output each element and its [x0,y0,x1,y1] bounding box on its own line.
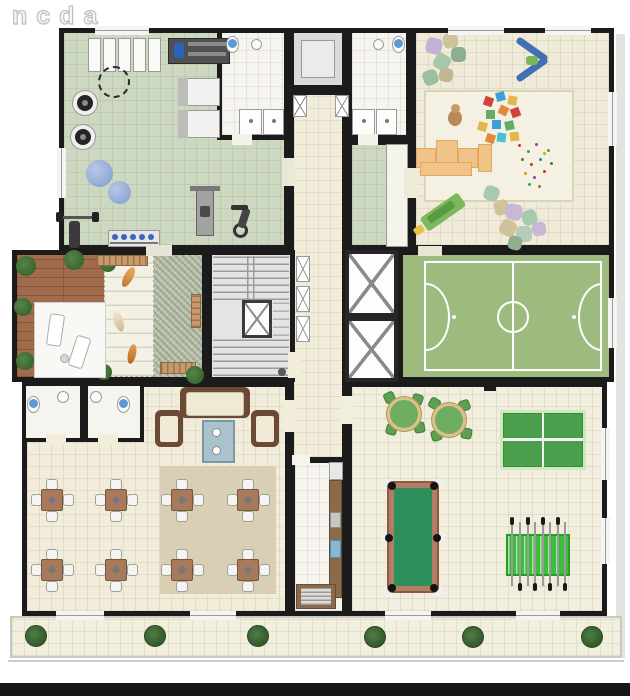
door-opening [98,434,118,444]
multi-gym-bar [188,42,226,46]
gym-locker [88,38,101,72]
foosball-rod [564,522,566,586]
terrace-tree [144,625,166,647]
door-opening [418,246,442,256]
puzzle-mat-piece [420,162,472,176]
dumbbell-rack-bar [110,242,158,244]
dumbbell [121,234,127,240]
washbasin [251,39,262,50]
window [516,611,560,620]
door-opening [282,158,295,186]
court-penalty-arc-right-curve [578,283,602,351]
deck-plant [64,250,84,270]
terrace-tree [581,626,603,648]
foosball-rod [527,522,529,586]
gym-locker [133,38,146,72]
garden-bench [191,294,201,328]
pool-pocket [388,482,396,490]
terrace-tree [462,626,484,648]
terrace-tree [25,625,47,647]
washbasin [57,391,69,403]
toy-block [486,110,495,119]
confetti-dot [521,158,524,161]
ceiling-fan-symbol [98,66,130,98]
window [95,26,149,35]
foosball-handle [510,517,514,525]
seesaw-toy-seat [526,56,538,65]
weight-bench [69,221,80,248]
window [385,611,431,620]
pool-table-felt [394,488,432,586]
weight-machine-bar [190,186,220,191]
deck-plant [16,352,34,370]
door-opening [288,352,301,378]
garden-plant [186,366,204,384]
dining-chair [242,581,254,592]
pool-pocket [433,534,441,542]
armchair-cushion [160,416,178,442]
dining-chair [127,494,138,506]
elevator-shaft-1 [345,250,398,317]
coffee-table-mug [212,428,221,437]
door-opening [341,396,354,424]
kitchen-sink [330,540,341,558]
card-table-top [435,406,463,434]
treadmill-console [178,110,188,138]
terrace-floor [10,616,622,658]
dining-chair [63,564,74,576]
toy-block [496,132,506,142]
court-penalty-arc-left-curve [426,283,450,351]
foosball-rod [542,522,544,586]
dining-chair [176,511,188,522]
duct-box [296,316,310,342]
treadmill-console [178,78,188,106]
dining-chair [46,511,58,522]
teddy-bear-head [451,104,460,113]
window [545,26,591,35]
foosball-rod [511,522,513,586]
duct-box [296,256,310,282]
pool-pocket [430,482,438,490]
dumbbell [148,234,154,240]
footer-black-bar [0,683,630,696]
foosball-handle [526,517,530,525]
toilet-lid [29,399,38,408]
foosball-rod [557,522,559,586]
confetti-dot [538,185,541,188]
weight-plate-hub [82,100,88,106]
weight-machine-seat [200,206,210,217]
stair-exit-marker [278,368,286,376]
card-table-top [390,400,418,428]
barbell-plate [92,212,99,222]
kitchen-grill [301,588,331,605]
confetti-dot [530,163,533,166]
exercise-bike-handlebar [231,205,248,210]
multi-gym-seat [174,43,184,58]
deck-plant [16,256,36,276]
dining-chair [46,581,58,592]
confetti-dot [524,172,527,175]
door-opening [358,134,378,145]
kitchen-counter [329,480,342,598]
window [56,611,104,620]
toy-block [510,132,520,142]
kitchen-cabinet [329,462,343,480]
toy-block [492,120,501,129]
kitchen-stove [330,512,341,528]
window [57,148,66,198]
dining-chair [110,511,122,522]
door-opening [232,134,252,145]
confetti-dot [547,149,550,152]
confetti-dot [550,162,553,165]
court-penalty-arc-right [578,283,602,351]
terrace-tree [247,625,269,647]
confetti-dot [543,152,546,155]
door-opening [146,245,172,256]
pool-pocket [430,584,438,592]
gym-locker [148,38,161,72]
window [608,92,617,146]
dining-chair [110,581,122,592]
window [601,518,610,564]
foosball-handle [563,583,567,591]
court-penalty-arc-left [426,283,450,351]
multi-gym-bar [188,52,226,56]
confetti-dot [543,170,546,173]
window [601,428,610,480]
toilet-lid [228,39,237,48]
window [608,298,617,348]
shower-head [385,119,389,123]
toy-block [507,95,517,105]
elevator-shaft-2 [345,317,398,382]
exercise-ball [108,181,131,204]
lounge-pad [34,302,106,378]
sofa-cushion [186,392,244,416]
duct-box [296,286,310,312]
window [190,611,236,620]
dining-chair [193,494,204,506]
foosball-rod [519,522,521,586]
dining-chair [176,581,188,592]
foosball-handle [541,517,545,525]
washbasin [373,39,384,50]
stair-landing-lines [273,302,289,336]
shower-head [362,119,366,123]
confetti-dot [535,143,538,146]
dining-chair [242,511,254,522]
court-penalty-dot [572,315,576,319]
coffee-table-mug [212,446,221,455]
toy-block [504,120,515,131]
floor-plan-screenshot: ncda [0,0,630,700]
shower-head [272,119,276,123]
door-opening [292,455,310,465]
washbasin [90,391,102,403]
x-cabinet-left [293,95,307,117]
dining-chair [127,564,138,576]
window [448,26,504,35]
exercise-ball [86,160,113,187]
pingpong-center-line [542,413,544,467]
deck-plant [14,298,32,316]
barbell-bar [58,216,96,219]
side-table [60,354,69,363]
plan-shadow-right [616,34,625,658]
foosball-handle [518,583,522,591]
shower-head [249,119,253,123]
dining-chair [63,494,74,506]
door-opening [46,434,66,444]
dining-chair [259,494,270,506]
pool-pocket [388,584,396,592]
dumbbell [139,234,145,240]
foosball-table [506,534,570,576]
confetti-dot [528,183,531,186]
barbell-plate [56,212,63,222]
wall-pillar [484,382,496,391]
foosball-rod [549,522,551,586]
puzzle-mat-piece [478,144,492,172]
door-opening [283,400,296,432]
court-penalty-dot [452,315,456,319]
confetti-dot [527,150,530,153]
terrace-tree [364,626,386,648]
weight-plate-hub [80,134,86,140]
court-center-circle [497,301,529,333]
confetti-dot [539,158,542,161]
floor-plan-canvas [0,0,630,700]
confetti-dot [518,144,521,147]
door-opening [404,168,418,198]
foosball-handle [548,583,552,591]
dumbbell [130,234,136,240]
toilet-lid [119,399,128,408]
pool-pocket [385,534,393,542]
bean-bag [451,47,466,62]
foosball-handle [556,517,560,525]
deck-bench [96,255,148,266]
dining-chair [259,564,270,576]
foosball-rod [534,522,536,586]
stair-void [242,300,272,338]
armchair-cushion [256,416,274,442]
x-cabinet-right [335,95,349,117]
foosball-handle [533,583,537,591]
confetti-dot [533,176,536,179]
toilet-lid [394,39,403,48]
terrace-edge-line [8,660,624,662]
dumbbell [112,234,118,240]
duct-shaft-inner [301,40,335,78]
coffee-table [202,420,235,463]
dining-chair [193,564,204,576]
stair-divider [247,256,255,300]
